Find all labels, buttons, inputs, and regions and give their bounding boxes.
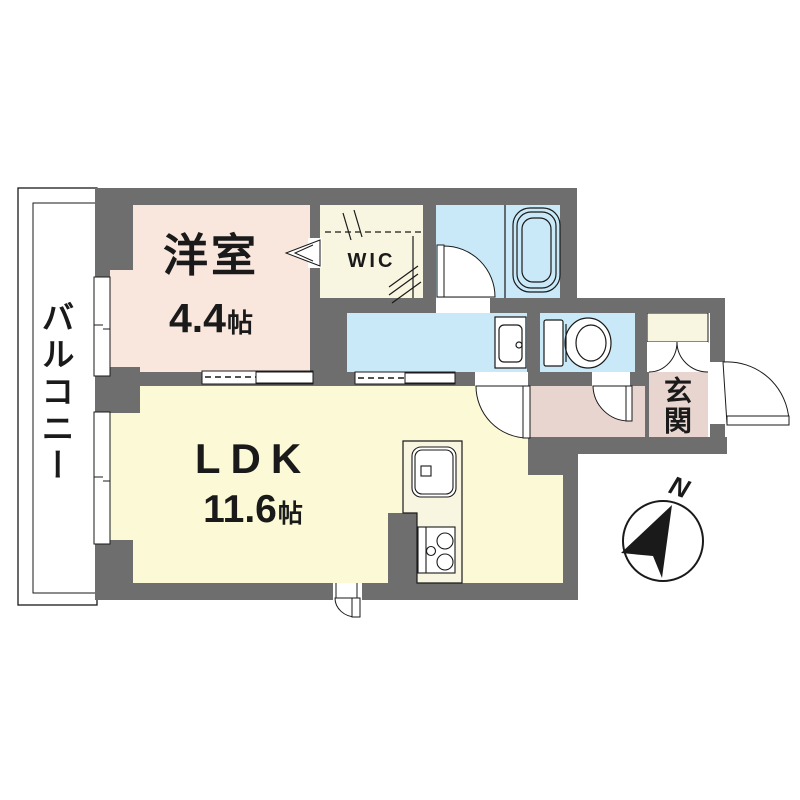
bedroom-floor — [110, 202, 310, 372]
balcony-window-ldk — [94, 412, 110, 544]
ldk-size-unit: 帖 — [278, 502, 303, 527]
ldk-door-gap — [475, 372, 528, 386]
toilet-door-gap — [592, 372, 630, 386]
bedroom-label: 洋室 — [112, 233, 310, 278]
bathroom-door-gap — [436, 298, 490, 313]
sliding-door-bedroom — [202, 371, 313, 384]
service-door — [335, 598, 360, 617]
ldk-size-value: 11.6 — [203, 490, 277, 529]
front-door — [723, 362, 789, 425]
bedroom-size: 4.4帖 — [112, 298, 310, 339]
ldk-kitchen-floor — [530, 475, 563, 583]
entrance-label: 玄関 — [662, 376, 690, 436]
ldk-label: LDK — [128, 438, 378, 480]
balcony-window-bedroom — [94, 277, 110, 376]
shoe-cabinet — [647, 313, 708, 342]
bedroom-size-unit: 帖 — [227, 310, 253, 336]
bedroom-size-value: 4.4 — [169, 298, 226, 339]
sliding-door-washroom — [355, 372, 455, 384]
ldk-floor — [110, 385, 530, 583]
washbasin — [495, 317, 526, 368]
toilet — [544, 318, 611, 368]
ldk-size: 11.6帖 — [128, 490, 378, 529]
wic-label: WIC — [320, 251, 423, 271]
compass-icon — [621, 501, 703, 581]
balcony-label: バルコニー — [39, 300, 72, 485]
service-door-gap — [333, 583, 362, 600]
gas-stove — [418, 527, 455, 573]
floor-plan: 洋室 4.4帖 LDK 11.6帖 WIC バルコニー 玄関 N — [0, 0, 800, 800]
kitchen-sink — [412, 447, 456, 497]
